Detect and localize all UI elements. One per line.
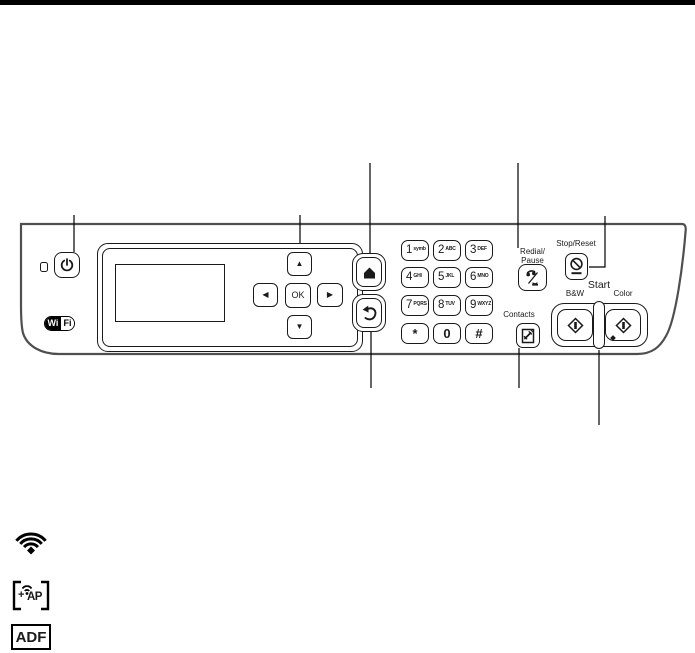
key-2[interactable]: 2 ABC (433, 240, 461, 261)
adf-icon-text: ADF (16, 629, 47, 646)
up-arrow-button[interactable]: ▲ (287, 252, 312, 276)
key-hash-glyph: # (475, 327, 482, 340)
simple-ap-icon: + AP (12, 580, 50, 611)
lcd-screen (115, 264, 225, 322)
redial-pause-icon (524, 269, 542, 287)
ok-button-label: OK (291, 291, 304, 300)
stop-reset-label: Stop/Reset (548, 240, 604, 249)
key-7-letters: PQRS (413, 302, 426, 307)
start-bw-icon (567, 317, 584, 334)
key-7[interactable]: 7 PQRS (401, 295, 429, 316)
key-9-letters: WXYZ (477, 302, 491, 307)
contacts-button[interactable] (516, 323, 540, 348)
key-4-digit: 4 (406, 272, 412, 284)
key-4[interactable]: 4 GHI (401, 267, 429, 288)
adf-icon: ADF (11, 624, 51, 650)
right-arrow-icon: ▶ (327, 291, 333, 299)
start-bw-button[interactable] (557, 309, 593, 341)
key-3[interactable]: 3 DEF (465, 240, 493, 261)
key-7-digit: 7 (406, 300, 412, 312)
left-arrow-button[interactable]: ◀ (253, 283, 278, 307)
simple-ap-plus: + (18, 589, 24, 601)
power-icon (59, 257, 75, 273)
key-1-digit: 1 (406, 245, 412, 257)
wifi-logo-wi: Wi (45, 317, 61, 330)
start-color-label: Color (603, 290, 643, 299)
key-6[interactable]: 6 MNO (465, 267, 493, 288)
start-color-icon (615, 317, 632, 334)
back-button[interactable] (356, 298, 382, 328)
key-6-letters: MNO (477, 274, 488, 279)
key-8-digit: 8 (438, 300, 444, 312)
wifi-signal-icon (14, 523, 48, 557)
down-arrow-button[interactable]: ▼ (287, 315, 312, 339)
key-8-letters: TUV (445, 302, 454, 307)
key-4-letters: GHI (413, 274, 421, 279)
key-star-glyph: * (412, 327, 417, 340)
key-1-letters: symb (413, 247, 425, 252)
key-3-digit: 3 (470, 245, 476, 257)
stop-reset-icon (569, 257, 584, 276)
key-0-digit: 0 (443, 327, 450, 340)
key-star[interactable]: * (401, 323, 429, 344)
home-button[interactable] (356, 257, 382, 287)
key-2-digit: 2 (438, 245, 444, 257)
key-5-letters: JKL (445, 274, 454, 279)
ok-button[interactable]: OK (285, 283, 311, 308)
wifi-logo-fi: Fi (61, 317, 74, 330)
redial-pause-label: Redial/ Pause (505, 248, 560, 266)
right-arrow-button[interactable]: ▶ (317, 283, 343, 307)
up-arrow-icon: ▲ (296, 260, 304, 268)
key-2-letters: ABC (445, 247, 455, 252)
key-3-letters: DEF (477, 247, 486, 252)
wifi-logo: Wi Fi (44, 316, 75, 331)
page: Wi Fi ▲ ◀ OK ▶ ▼ (0, 0, 695, 653)
contacts-icon (521, 328, 535, 344)
power-button[interactable] (54, 252, 80, 278)
key-5-digit: 5 (438, 272, 444, 284)
stop-reset-button[interactable] (565, 253, 588, 280)
key-9-digit: 9 (470, 300, 476, 312)
contacts-label: Contacts (494, 311, 544, 320)
key-0[interactable]: 0 (433, 323, 461, 344)
legend: + AP ADF (0, 515, 80, 653)
left-arrow-icon: ◀ (262, 291, 268, 299)
down-arrow-icon: ▼ (296, 323, 304, 331)
redial-pause-button[interactable] (518, 264, 547, 291)
start-bw-label: B&W (555, 290, 595, 299)
key-8[interactable]: 8 TUV (433, 295, 461, 316)
key-hash[interactable]: # (465, 323, 493, 344)
home-icon (362, 265, 377, 280)
simple-ap-text: AP (27, 591, 42, 603)
key-9[interactable]: 9 WXYZ (465, 295, 493, 316)
start-divider-pill (593, 301, 605, 349)
key-1[interactable]: 1 symb (401, 240, 429, 261)
key-6-digit: 6 (470, 272, 476, 284)
key-5[interactable]: 5 JKL (433, 267, 461, 288)
back-icon (361, 304, 378, 322)
power-led (40, 262, 48, 272)
